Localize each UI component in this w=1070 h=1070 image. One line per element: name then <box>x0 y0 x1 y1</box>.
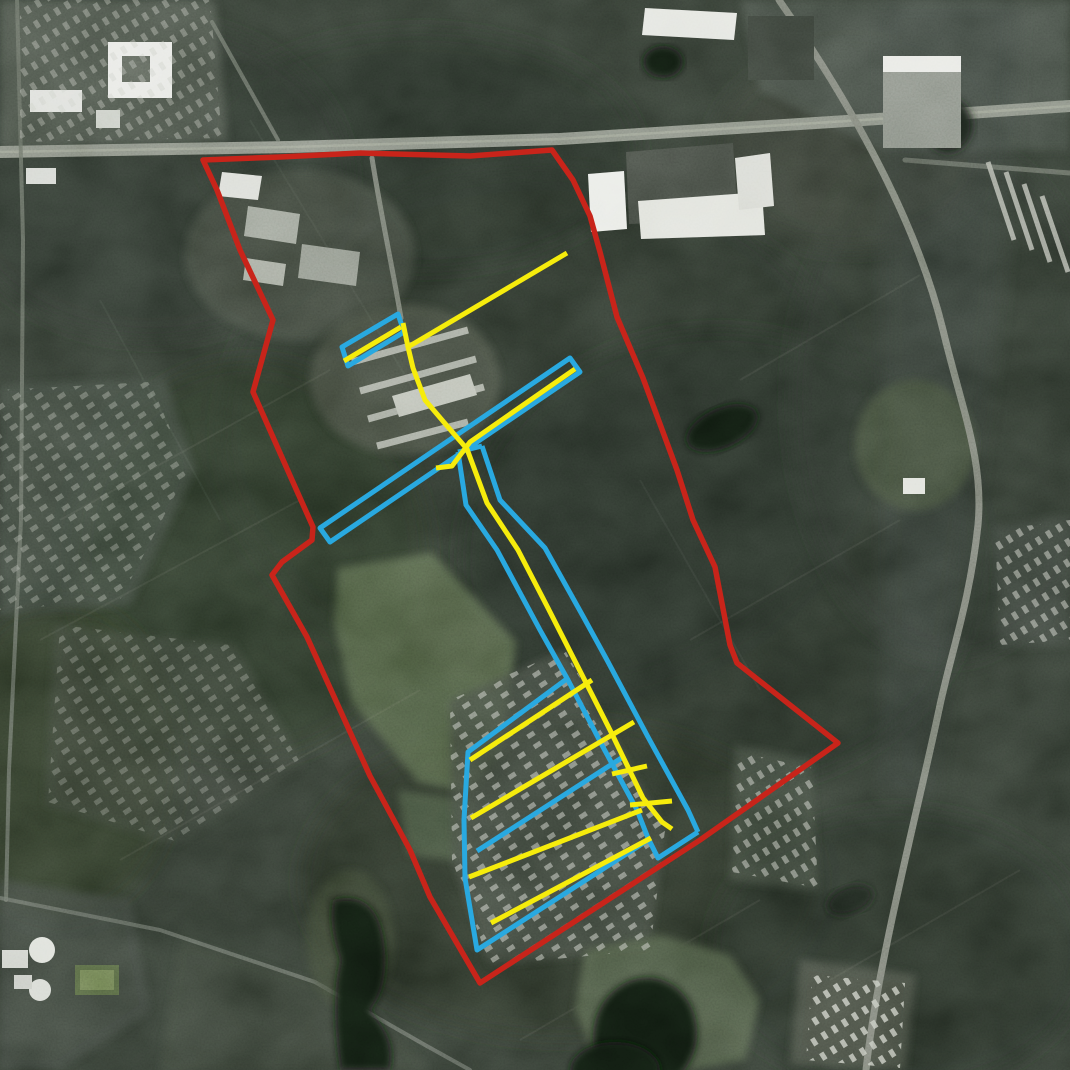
map-screenshot <box>0 0 1070 1070</box>
aerial-basemap <box>0 0 1070 1070</box>
